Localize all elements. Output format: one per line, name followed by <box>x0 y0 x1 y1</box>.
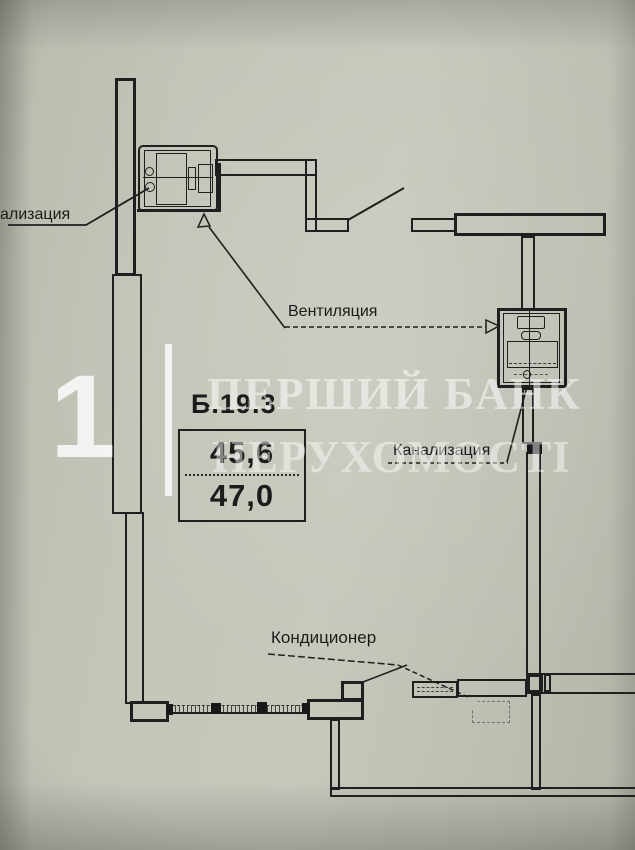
corner-diagonal <box>363 665 407 682</box>
sewerage-right-leader <box>507 390 526 462</box>
sewerage-left-leader <box>8 188 149 225</box>
ventilation-leader-up <box>209 227 285 328</box>
leader-lines <box>0 0 635 850</box>
floor-plan-photo: ализация Вентиляция Канализация Кондицио… <box>0 0 635 850</box>
arrowhead-up-icon <box>198 214 210 227</box>
door-swing <box>348 188 404 220</box>
arrowhead-right-icon <box>486 320 499 333</box>
ac-underline <box>268 654 398 665</box>
ac-leader <box>398 665 468 697</box>
